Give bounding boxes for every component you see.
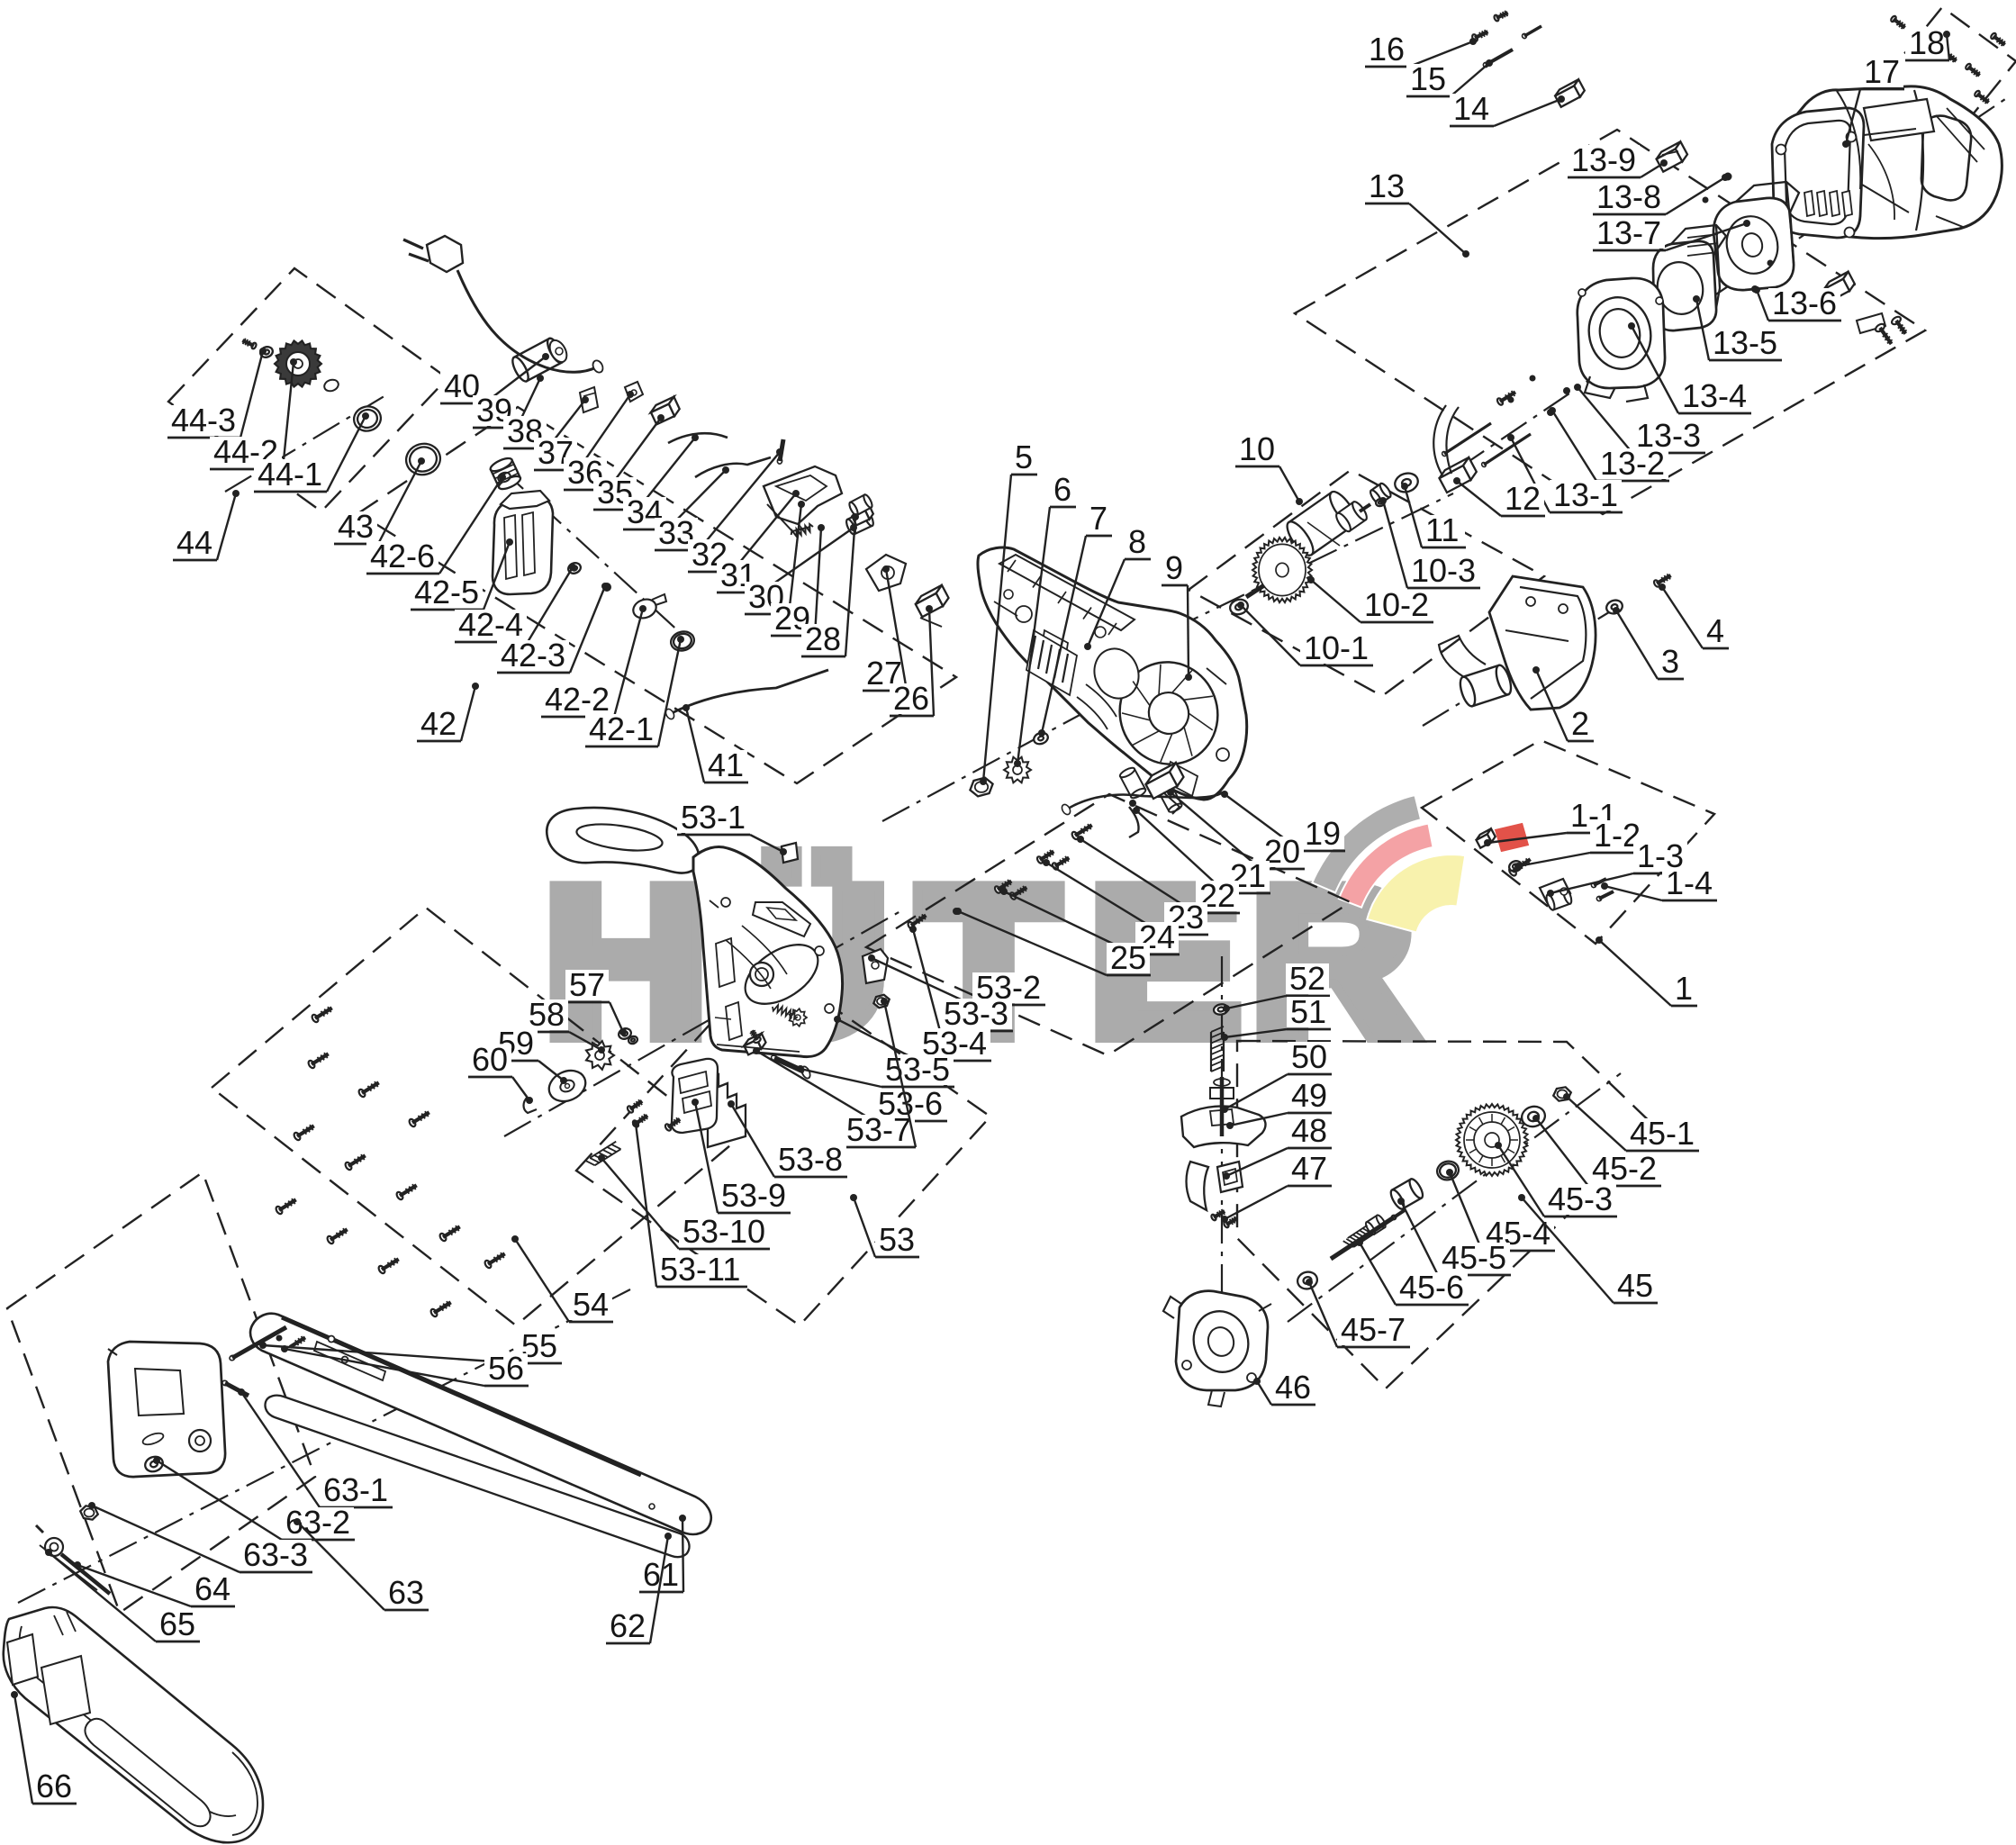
svg-text:25: 25 [1110, 939, 1146, 976]
svg-text:7: 7 [1089, 500, 1107, 537]
svg-text:1: 1 [1675, 970, 1693, 1007]
svg-text:13-7: 13-7 [1596, 214, 1661, 251]
svg-text:16: 16 [1369, 31, 1405, 68]
svg-text:64: 64 [194, 1570, 231, 1607]
svg-text:26: 26 [893, 680, 929, 717]
svg-text:11: 11 [1425, 511, 1459, 548]
svg-text:53: 53 [879, 1221, 915, 1258]
svg-text:52: 52 [1289, 960, 1325, 997]
svg-text:53-5: 53-5 [885, 1051, 950, 1088]
svg-text:13: 13 [1369, 167, 1405, 204]
svg-text:13-8: 13-8 [1596, 178, 1661, 215]
svg-text:45-6: 45-6 [1399, 1269, 1464, 1306]
svg-text:45-7: 45-7 [1341, 1311, 1406, 1348]
svg-text:65: 65 [159, 1605, 195, 1642]
svg-text:13-9: 13-9 [1571, 141, 1636, 178]
svg-text:12: 12 [1505, 480, 1541, 517]
svg-text:13-4: 13-4 [1682, 377, 1747, 414]
svg-text:53-11: 53-11 [660, 1251, 740, 1288]
svg-text:44-1: 44-1 [258, 456, 322, 493]
svg-text:53-1: 53-1 [681, 799, 746, 836]
svg-text:13-1: 13-1 [1553, 476, 1618, 513]
svg-text:56: 56 [488, 1350, 524, 1387]
svg-text:63: 63 [388, 1574, 424, 1611]
svg-text:10-1: 10-1 [1304, 629, 1369, 666]
svg-text:19: 19 [1305, 815, 1341, 852]
svg-text:10-3: 10-3 [1411, 552, 1476, 589]
svg-text:9: 9 [1165, 549, 1183, 586]
svg-text:42-5: 42-5 [414, 574, 479, 610]
svg-text:20: 20 [1264, 833, 1300, 870]
svg-text:47: 47 [1291, 1150, 1327, 1187]
svg-text:42-6: 42-6 [370, 538, 435, 574]
svg-text:18: 18 [1909, 24, 1945, 61]
svg-text:41: 41 [708, 746, 744, 783]
svg-text:10-2: 10-2 [1364, 586, 1429, 623]
svg-text:66: 66 [36, 1768, 72, 1804]
svg-text:53-8: 53-8 [778, 1141, 843, 1178]
svg-text:3: 3 [1661, 643, 1679, 680]
svg-text:4: 4 [1706, 612, 1724, 649]
svg-text:46: 46 [1275, 1369, 1311, 1406]
svg-text:48: 48 [1291, 1112, 1327, 1149]
svg-text:63-1: 63-1 [323, 1471, 388, 1508]
svg-text:28: 28 [805, 620, 841, 657]
svg-text:54: 54 [573, 1286, 609, 1323]
svg-text:57: 57 [569, 966, 605, 1003]
svg-text:10: 10 [1239, 430, 1275, 467]
svg-text:1-4: 1-4 [1666, 864, 1713, 901]
svg-text:42: 42 [420, 705, 457, 742]
svg-text:53-7: 53-7 [846, 1111, 911, 1148]
svg-text:53-9: 53-9 [721, 1177, 786, 1214]
svg-text:62: 62 [610, 1607, 646, 1644]
svg-text:5: 5 [1015, 439, 1033, 475]
svg-text:45-3: 45-3 [1548, 1180, 1613, 1217]
svg-text:2: 2 [1571, 705, 1589, 742]
svg-text:51: 51 [1290, 993, 1326, 1030]
svg-text:60: 60 [472, 1041, 508, 1078]
svg-text:53-10: 53-10 [683, 1213, 765, 1250]
svg-text:17: 17 [1864, 53, 1900, 90]
svg-text:15: 15 [1410, 60, 1446, 97]
svg-text:50: 50 [1291, 1038, 1327, 1075]
svg-text:H: H [545, 846, 708, 1079]
svg-text:43: 43 [338, 508, 374, 545]
svg-text:6: 6 [1053, 471, 1071, 508]
svg-text:8: 8 [1128, 523, 1146, 560]
svg-text:14: 14 [1453, 90, 1489, 127]
svg-text:13-6: 13-6 [1772, 285, 1837, 321]
svg-text:44: 44 [176, 524, 212, 561]
svg-text:45: 45 [1617, 1267, 1653, 1304]
svg-text:49: 49 [1291, 1077, 1327, 1114]
svg-text:63-3: 63-3 [243, 1536, 308, 1573]
svg-text:13-5: 13-5 [1713, 324, 1777, 361]
svg-text:42-1: 42-1 [589, 710, 654, 747]
svg-text:42-3: 42-3 [501, 637, 565, 674]
svg-text:45-1: 45-1 [1630, 1115, 1695, 1152]
